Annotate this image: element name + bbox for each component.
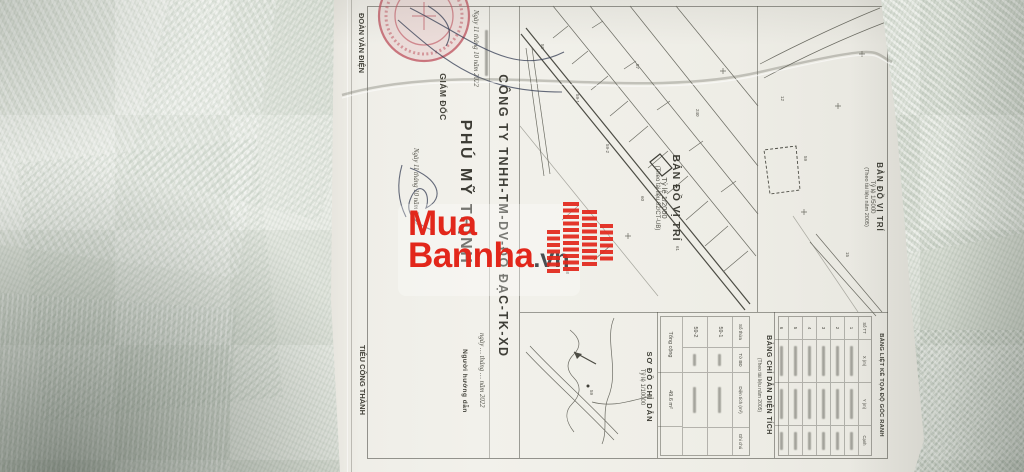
fabric-patch xyxy=(0,0,280,278)
col-header: Y (m) xyxy=(859,382,871,425)
blurred-value xyxy=(683,427,707,455)
svg-text:57: 57 xyxy=(635,64,640,70)
row-id: 4 xyxy=(803,317,816,339)
blurred-value xyxy=(817,382,830,425)
blurred-value xyxy=(831,382,844,425)
blurred-value xyxy=(789,339,802,382)
col-header: Số thửa xyxy=(733,317,749,347)
blurred-value xyxy=(845,425,858,455)
blurred-value xyxy=(683,347,707,372)
blurred-value xyxy=(789,425,802,455)
coord-table: Số TT X (m) Y (m) Cạnh 1 2 xyxy=(778,316,872,456)
blurred-value xyxy=(708,347,732,372)
area-row: 59-1 xyxy=(708,317,733,455)
paper-document: 59 15 12 BẢN ĐỒ VỊ TRÍ Tỷ lệ 1/5000 (The… xyxy=(330,0,930,472)
map-2000-title-block: BẢN ĐỒ VỊ TRÍ Tỷ lệ 1/2000 (Theo tài liệ… xyxy=(654,128,682,268)
blurred-value xyxy=(845,339,858,382)
total-label: Tổng cộng xyxy=(658,317,682,372)
fabric-patch xyxy=(0,291,237,472)
row-id: 6 xyxy=(775,317,788,339)
row-id: 1 xyxy=(845,317,858,339)
blurred-value xyxy=(803,425,816,455)
signature-ink xyxy=(345,0,570,472)
coord-row: 4 xyxy=(803,317,817,455)
parcel-id: 59-1 xyxy=(708,317,732,347)
map-title: BẢN ĐỒ VỊ TRÍ xyxy=(670,128,682,268)
coord-table-title: BẢNG LIỆT KÊ TỌA ĐỘ GÓC RANH xyxy=(878,314,884,456)
area-table-title: BẢNG CHỈ DẪN DIỆN TÍCH xyxy=(765,316,772,454)
blurred-value xyxy=(658,426,682,455)
total-value: 49.6 m² xyxy=(658,372,682,426)
guide-map-title-block: SƠ ĐỒ CHỈ DẪN Tỷ lệ 1/10000 xyxy=(639,332,654,442)
row-id: 3 xyxy=(817,317,830,339)
area-table: Số thửa Tờ BĐ Diện tích (m²) Ghi chú 59-… xyxy=(660,316,750,456)
map-scale: Tỷ lệ 1/2000 xyxy=(660,128,669,268)
blurred-value xyxy=(775,382,788,425)
area-total-row: Tổng cộng 49.6 m² xyxy=(658,317,683,455)
map-title: SƠ ĐỒ CHỈ DẪN xyxy=(645,332,654,442)
col-header: Tờ BĐ xyxy=(733,347,749,372)
coord-row: 1 xyxy=(845,317,859,455)
blurred-value xyxy=(683,372,707,427)
blurred-value xyxy=(845,382,858,425)
col-header: Số TT xyxy=(859,317,871,339)
col-header: Cạnh xyxy=(859,425,871,455)
blurred-value xyxy=(789,382,802,425)
parcel-id: 59-2 xyxy=(683,317,707,347)
coord-row: 2 xyxy=(831,317,845,455)
blurred-value xyxy=(775,339,788,382)
map-scale: Tỷ lệ 1/10000 xyxy=(639,332,645,442)
blurred-value xyxy=(817,339,830,382)
svg-text:240: 240 xyxy=(695,109,700,117)
coord-row: 6 xyxy=(775,317,789,455)
blurred-value xyxy=(831,425,844,455)
blurred-value xyxy=(831,339,844,382)
fabric-patch xyxy=(17,138,283,422)
area-table-source: (Theo tài liệu năm 2005) xyxy=(756,316,762,454)
map-2005-title-block: BẢN ĐỒ VỊ TRÍ Tỷ lệ 1/5000 (Theo tài liệ… xyxy=(863,132,884,262)
blurred-value xyxy=(708,372,732,427)
svg-text:59: 59 xyxy=(589,390,594,396)
coord-row: 3 xyxy=(817,317,831,455)
svg-text:59: 59 xyxy=(803,156,808,162)
map-source: (Theo tài liệu 02/CT-UB) xyxy=(654,128,660,268)
col-header: Ghi chú xyxy=(733,427,749,455)
map-scale: Tỷ lệ 1/5000 xyxy=(869,132,875,262)
map-title: BẢN ĐỒ VỊ TRÍ xyxy=(875,132,884,262)
row-id: 2 xyxy=(831,317,844,339)
coord-table-header-row: Số TT X (m) Y (m) Cạnh xyxy=(859,317,871,455)
col-header: X (m) xyxy=(859,339,871,382)
blurred-value xyxy=(817,425,830,455)
svg-text:60: 60 xyxy=(640,196,645,202)
blurred-value xyxy=(803,339,816,382)
row-id: 5 xyxy=(789,317,802,339)
document-sheet: 59 15 12 BẢN ĐỒ VỊ TRÍ Tỷ lệ 1/5000 (The… xyxy=(345,0,900,472)
photo-of-land-document: 59 15 12 BẢN ĐỒ VỊ TRÍ Tỷ lệ 1/5000 (The… xyxy=(0,0,1024,472)
svg-text:15: 15 xyxy=(845,252,850,258)
area-table-header-row: Số thửa Tờ BĐ Diện tích (m²) Ghi chú xyxy=(733,317,749,455)
coord-row: 5 xyxy=(789,317,803,455)
blurred-value xyxy=(803,382,816,425)
blurred-value xyxy=(775,425,788,455)
blurred-value xyxy=(708,427,732,455)
map-source: (Theo tài liệu năm 2005) xyxy=(863,132,869,262)
svg-text:59-1: 59-1 xyxy=(575,94,580,104)
svg-text:12: 12 xyxy=(780,96,785,102)
area-row: 59-2 xyxy=(683,317,708,455)
col-header: Diện tích (m²) xyxy=(733,372,749,427)
svg-text:59-2: 59-2 xyxy=(605,144,610,154)
